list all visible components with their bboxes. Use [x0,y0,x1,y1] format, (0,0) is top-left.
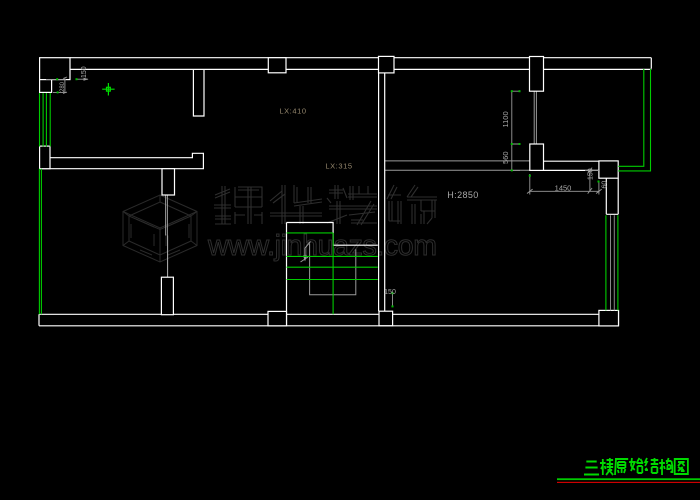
svg-text:1450: 1450 [555,184,572,193]
svg-text:280: 280 [60,81,66,92]
svg-text:1100: 1100 [501,111,510,127]
svg-text:150: 150 [384,289,396,296]
svg-text:560: 560 [501,151,510,164]
svg-text:www.jinhuazs.com: www.jinhuazs.com [207,230,437,262]
svg-text:150: 150 [81,66,88,78]
svg-text:LX:410: LX:410 [279,106,306,115]
svg-text:60: 60 [602,181,609,189]
svg-text:H:2850: H:2850 [447,190,478,200]
svg-text:LX:315: LX:315 [325,161,352,170]
svg-text:150: 150 [588,168,595,180]
